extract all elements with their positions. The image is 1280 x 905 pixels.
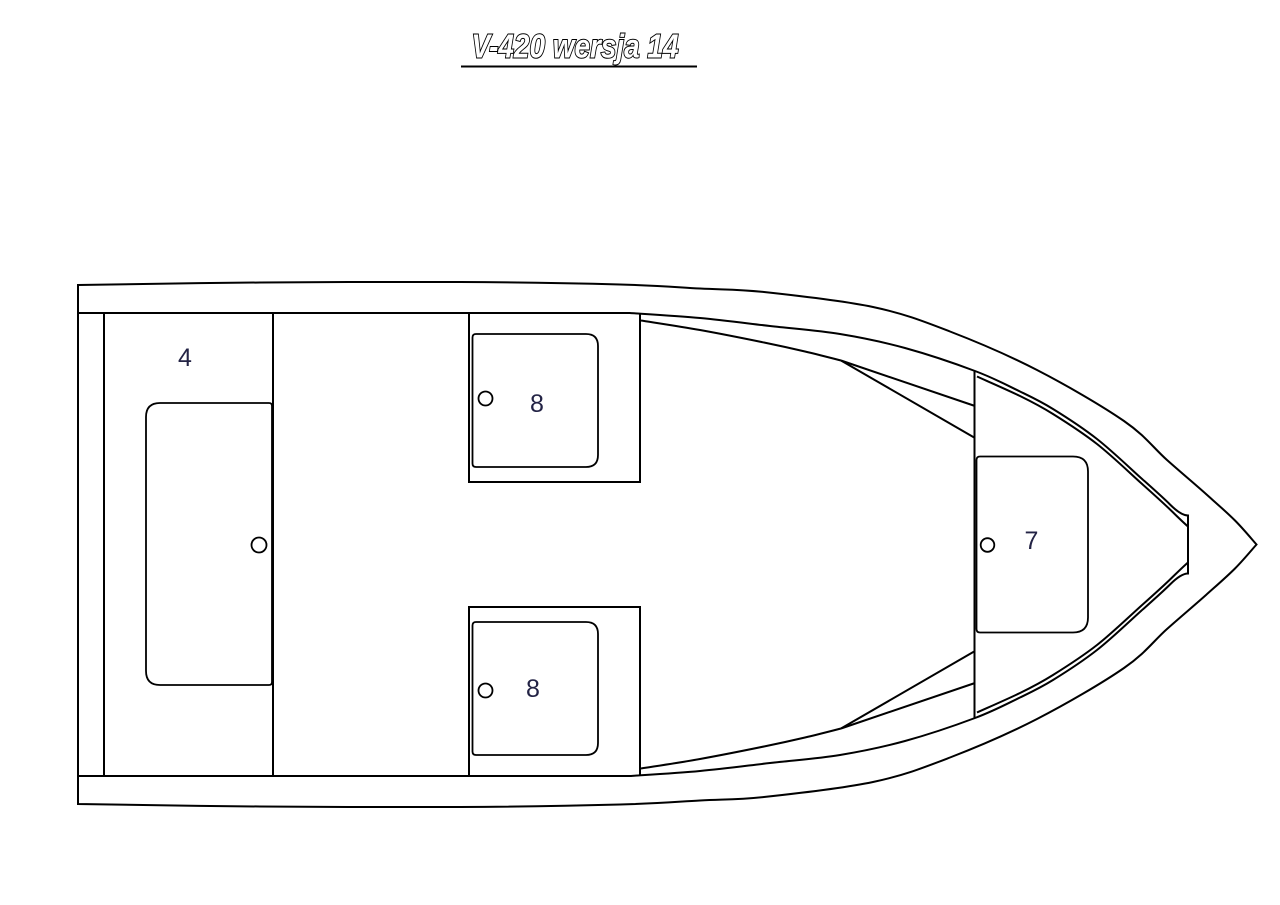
svg-text:4: 4 (178, 344, 192, 372)
svg-text:8: 8 (530, 390, 544, 418)
svg-text:7: 7 (1025, 527, 1039, 555)
svg-text:8: 8 (526, 675, 540, 703)
svg-text:V-420 wersja 14: V-420 wersja 14 (472, 28, 679, 65)
